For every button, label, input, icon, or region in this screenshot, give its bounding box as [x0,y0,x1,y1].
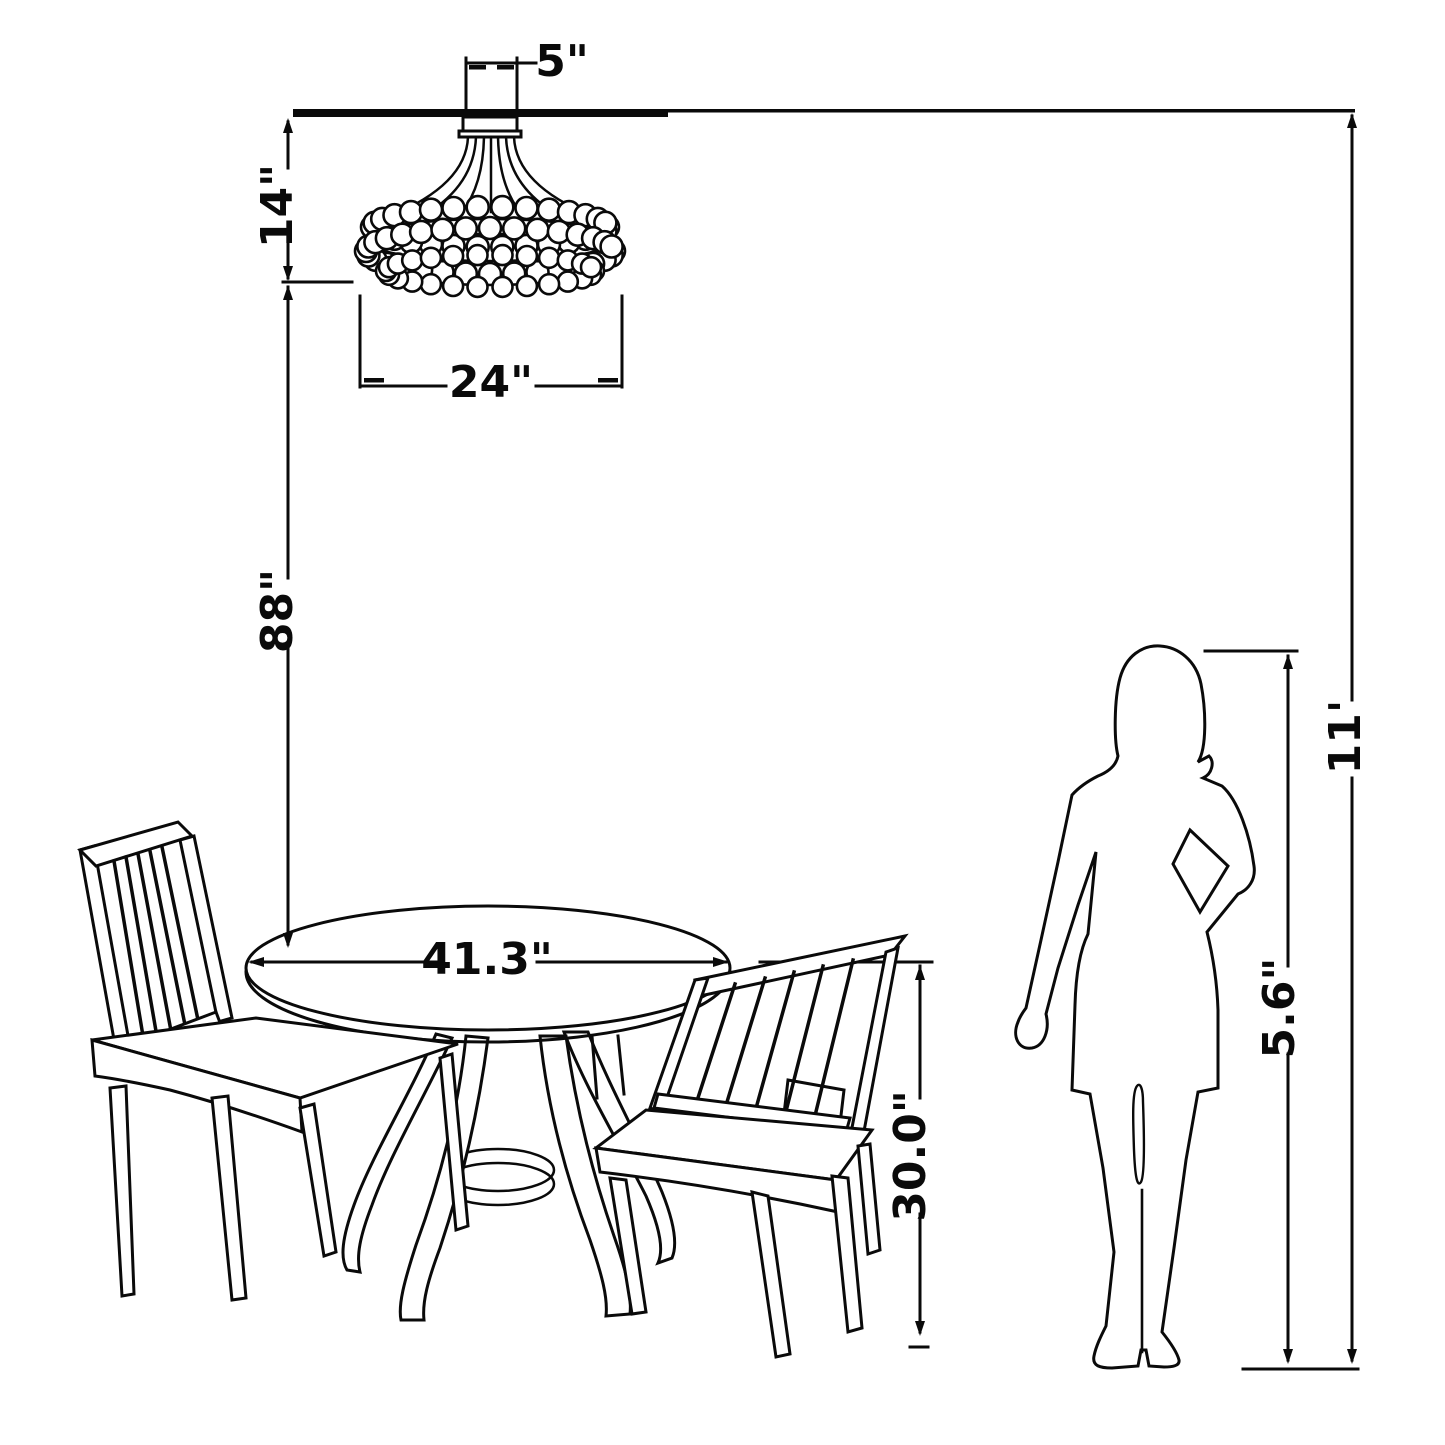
label-chandelier-diameter: 24" [449,361,533,405]
label-ceiling-height: 11' [1324,700,1368,775]
chair-back-stile [80,846,132,1062]
dim-canopy-width [466,58,536,110]
label-ceiling-to-table: 88" [256,569,300,653]
chair-left [80,822,468,1300]
label-person-height: 5.6" [1258,958,1302,1059]
label-chandelier-height: 14" [256,164,300,248]
label-table-diameter: 41.3" [421,938,552,982]
label-table-height: 30.0" [889,1090,933,1221]
chandelier [355,117,625,297]
ceiling-line [293,109,1355,117]
label-canopy-width: 5" [535,40,589,84]
chair-back-slats [114,847,198,1042]
woman-silhouette [1016,646,1255,1368]
diagram-linework [0,0,1445,1445]
dimension-diagram: 5" 14" 24" 88" 41.3" 30.0" 5.6" 11' [0,0,1445,1445]
chair-top-rail [80,822,192,866]
